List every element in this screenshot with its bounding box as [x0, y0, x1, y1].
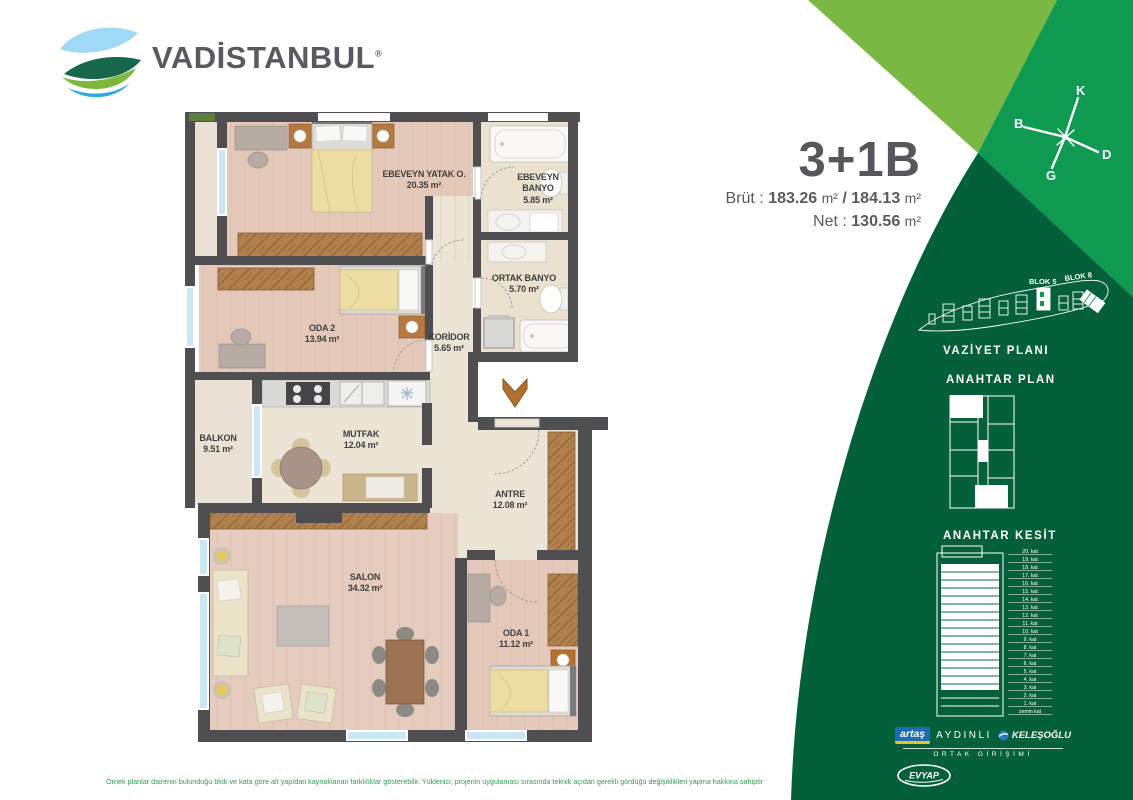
room-label-oda1: ODA 111.12 m² — [499, 628, 533, 651]
floor-label: zemin kat — [1019, 709, 1042, 715]
floor-label: 11. kat — [1022, 621, 1038, 627]
floor-label: 20. kat — [1022, 549, 1038, 555]
floor-label: 16. kat — [1022, 581, 1038, 587]
bed-icon — [312, 118, 372, 212]
room-label-ortak-banyo: ORTAK BANYO5.70 m² — [492, 273, 556, 296]
partner-logos: artaş AYDINLI KELEŞOĞLU ORTAK GİRİŞİMİ E… — [896, 727, 1070, 789]
kelesoglu-logo: KELEŞOĞLU — [998, 730, 1071, 741]
room-label-ebeveyn-banyo: EBEVEYN BANYO5.85 m² — [508, 172, 568, 206]
floor-label: 18. kat — [1022, 565, 1038, 571]
evyap-logo: EVYAP — [896, 763, 1070, 789]
key-section-heading: ANAHTAR KESİT — [943, 530, 1057, 542]
separator: / — [842, 190, 846, 207]
bed-icon — [340, 266, 427, 314]
hall-wardrobe-icon — [548, 432, 575, 558]
coffee-table-icon — [277, 606, 329, 646]
floor-label: 19. kat — [1022, 557, 1038, 563]
floor-label: 5. kat — [1024, 669, 1037, 675]
room-label-salon: SALON34.32 m² — [348, 572, 382, 595]
page: VADİSTANBUL® 3+1B Brüt : 183.26 m² / 184… — [0, 0, 1133, 800]
bed-icon — [490, 666, 576, 716]
floor-label: 12. kat — [1022, 613, 1038, 619]
compass-east: D — [1102, 147, 1111, 162]
bathtub-icon — [490, 126, 570, 162]
net-area-line: Net : 130.56 m² — [726, 213, 921, 231]
blok5-label: BLOK 5 — [1029, 277, 1057, 286]
compass-icon: K B D G — [1012, 80, 1130, 185]
floor-label: 6. kat — [1024, 661, 1037, 667]
footer-disclaimer: Örnek planlar dairenin bulunduğu blok ve… — [106, 777, 766, 786]
sink-counter-icon — [488, 210, 562, 235]
divider — [903, 748, 1063, 749]
wardrobe-icon — [548, 574, 578, 646]
armchair-icon — [297, 684, 337, 724]
floor-label: 4. kat — [1024, 677, 1037, 683]
unit-suffix: m² — [822, 190, 838, 206]
floor-label: 1. kat — [1024, 701, 1037, 707]
armchair-icon — [254, 684, 294, 724]
key-plan-diagram — [940, 390, 1025, 514]
floor-label: 15. kat — [1022, 589, 1038, 595]
sink-counter-icon — [488, 242, 546, 262]
floor-label: 2. kat — [1024, 693, 1037, 699]
planter-icon — [189, 113, 215, 121]
bathtub-icon — [520, 320, 576, 352]
kelesoglu-globe-icon — [998, 730, 1009, 741]
gross-value-2: 184.13 — [851, 190, 900, 207]
blok8-label: BLOK 8 — [1064, 270, 1093, 283]
entry-door-leaf — [495, 419, 539, 427]
floor-label: 9. kat — [1024, 637, 1037, 643]
sofa-icon — [213, 570, 248, 676]
wardrobe-icon — [238, 233, 422, 258]
key-plan-heading: ANAHTAR PLAN — [946, 374, 1056, 386]
floor-label: 7. kat — [1024, 653, 1037, 659]
net-value: 130.56 — [851, 213, 900, 230]
compass-south: G — [1046, 168, 1056, 183]
floor-label: 14. kat — [1022, 597, 1038, 603]
registered-mark: ® — [375, 49, 382, 59]
room-label-antre: ANTRE12.08 m² — [493, 489, 527, 512]
net-label: Net : — [813, 213, 847, 230]
compass-north: K — [1076, 83, 1086, 98]
room-label-balkon: BALKON9.51 m² — [199, 433, 236, 456]
compass-west: B — [1014, 116, 1023, 131]
artas-logo: artaş — [895, 727, 930, 744]
wardrobe-icon — [218, 268, 314, 290]
floor-label: 13. kat — [1022, 605, 1038, 611]
joint-venture-label: ORTAK GİRİŞİMİ — [896, 751, 1070, 758]
brand-name: VADİSTANBUL — [152, 40, 375, 75]
room-label-ebeveyn-yatak: EBEVEYN YATAK O.20.35 m² — [383, 169, 466, 192]
gross-area-line: Brüt : 183.26 m² / 184.13 m² — [726, 190, 921, 208]
tv-icon — [296, 513, 342, 523]
floor-label: 17. kat — [1022, 573, 1038, 579]
site-plan-diagram: BLOK 5 BLOK 8 — [913, 268, 1118, 343]
washing-machine-icon — [484, 318, 514, 348]
key-section-diagram: 20. kat 19. kat 18. kat 17. kat 16. kat … — [928, 544, 1056, 722]
unit-suffix: m² — [905, 213, 921, 229]
gross-label: Brüt : — [726, 190, 764, 207]
aydinli-logo: AYDINLI — [936, 730, 992, 741]
room-label-oda2: ODA 213.94 m² — [305, 323, 339, 346]
gross-value-1: 183.26 — [768, 190, 817, 207]
room-label-mutfak: MUTFAK12.04 m² — [343, 429, 379, 452]
brand-wordmark: VADİSTANBUL® — [152, 40, 382, 76]
highlighted-unit-bottom — [975, 485, 1008, 508]
floor-label: 3. kat — [1024, 685, 1037, 691]
svg-text:EVYAP: EVYAP — [909, 771, 940, 781]
unit-type-title: 3+1B — [726, 136, 921, 185]
site-plan-heading: VAZİYET PLANI — [943, 345, 1049, 357]
entrance-arrow-icon — [503, 379, 527, 407]
room-label-koridor: KORİDOR5.65 m² — [428, 332, 469, 355]
site-buildings — [929, 288, 1105, 324]
vadistanbul-logo-icon — [56, 22, 144, 100]
unit-suffix: m² — [905, 190, 921, 206]
stove-icon — [286, 382, 330, 405]
floor-label: 8. kat — [1024, 645, 1037, 651]
highlighted-floors — [941, 564, 999, 690]
unit-info: 3+1B Brüt : 183.26 m² / 184.13 m² Net : … — [726, 136, 921, 231]
floor-label: 10. kat — [1022, 629, 1038, 635]
